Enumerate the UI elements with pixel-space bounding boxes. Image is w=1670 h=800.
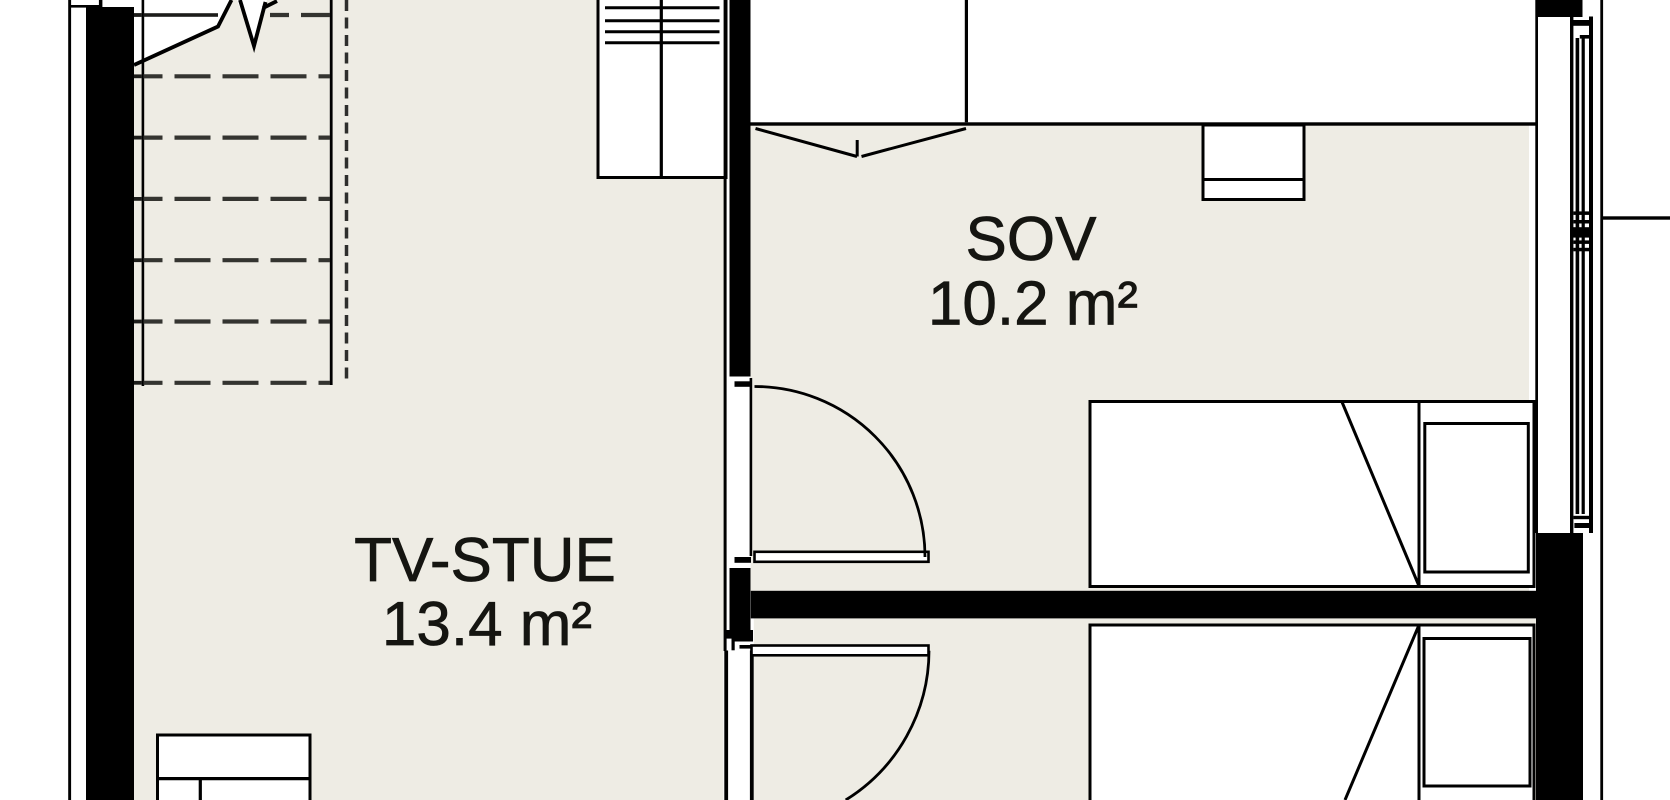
svg-text:SOV: SOV [966,205,1098,274]
svg-text:10.2 m²: 10.2 m² [928,270,1138,339]
svg-text:13.4 m²: 13.4 m² [382,590,592,659]
svg-text:TV-STUE: TV-STUE [354,526,616,595]
